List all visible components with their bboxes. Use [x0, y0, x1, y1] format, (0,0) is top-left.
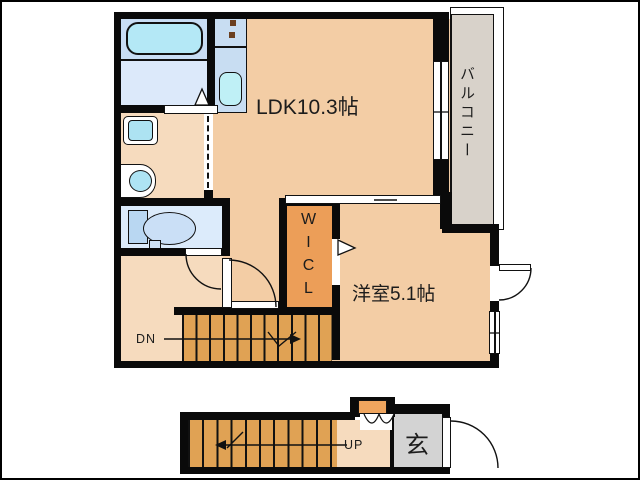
hall-door-threshold [230, 301, 279, 309]
western-room-door [499, 264, 531, 271]
entrance-door [442, 417, 451, 468]
wall [490, 353, 499, 363]
stove-burner [229, 32, 235, 38]
stairs-1f [188, 420, 337, 467]
closet-opening [332, 239, 340, 285]
ldk-sliding-door [285, 195, 441, 204]
down-stairs-label: DN [136, 332, 156, 346]
balcony-label: バルコニー [456, 66, 477, 236]
washing-machine-pan-inner [128, 120, 153, 141]
wall [332, 285, 340, 360]
kitchen-divider [214, 46, 247, 48]
western-room-label: 洋室5.1帖 [352, 279, 435, 306]
hallway [121, 256, 223, 307]
floor-plan: LDK10.3帖 洋室5.1帖 バルコニー WICL DN UP 玄 [0, 0, 640, 480]
wall [387, 404, 450, 414]
toilet-door [185, 248, 222, 256]
wall [180, 412, 355, 420]
wall [433, 159, 449, 195]
shoe-cabinet-opening [360, 414, 392, 430]
up-stairs-label: UP [344, 438, 363, 452]
shoe-cabinet [358, 400, 387, 414]
wall [222, 198, 230, 256]
wall [114, 198, 230, 206]
washbasin-bowl [129, 170, 152, 192]
walk-in-closet-label: WICL [299, 211, 317, 311]
wall [180, 412, 188, 474]
entrance-door-swing [451, 421, 498, 468]
wall [114, 12, 121, 368]
wall [433, 12, 449, 62]
hall-door [222, 258, 232, 308]
wall [180, 467, 450, 474]
stove-burner [230, 20, 236, 26]
wall [490, 230, 499, 266]
accordion-partition-line [207, 116, 209, 188]
wall [114, 105, 167, 113]
wall [114, 248, 186, 256]
entrance-label: 玄 [405, 425, 429, 460]
bathroom-sliding-door [164, 105, 218, 114]
stairs-2f [182, 315, 332, 361]
wall [332, 198, 340, 239]
wall [279, 198, 287, 315]
room-bathroom-lower [121, 60, 207, 105]
western-room-door-swing [499, 268, 531, 300]
ldk-window-mullion [440, 62, 442, 159]
kitchen-sink [219, 72, 242, 106]
western-room-door-gap [490, 266, 499, 301]
bathroom-divider [121, 59, 207, 61]
bathtub [126, 22, 203, 55]
wall [114, 361, 499, 368]
wall [207, 12, 215, 112]
western-room-window-mullion [494, 312, 496, 353]
wall [114, 12, 449, 19]
ldk-label: LDK10.3帖 [256, 91, 359, 121]
